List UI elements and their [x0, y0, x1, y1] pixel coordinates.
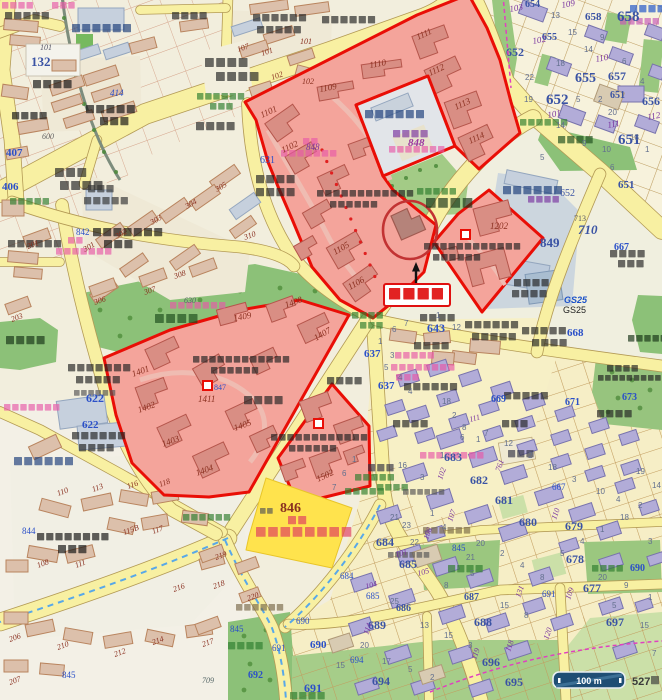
- svg-text:3: 3: [648, 537, 653, 546]
- svg-text:8: 8: [444, 581, 449, 590]
- svg-text:7: 7: [332, 483, 337, 492]
- svg-text:17: 17: [382, 657, 391, 666]
- svg-text:694: 694: [372, 674, 390, 688]
- svg-text:651: 651: [618, 179, 635, 191]
- svg-text:691: 691: [542, 589, 556, 599]
- svg-text:845: 845: [230, 624, 244, 634]
- svg-text:7: 7: [652, 649, 657, 658]
- svg-text:406: 406: [2, 181, 19, 193]
- svg-text:25: 25: [390, 597, 399, 606]
- svg-text:19: 19: [524, 95, 533, 104]
- svg-text:18: 18: [630, 133, 639, 142]
- svg-text:4: 4: [398, 373, 403, 382]
- svg-text:4: 4: [640, 77, 645, 86]
- svg-text:846: 846: [280, 501, 301, 516]
- svg-text:21: 21: [390, 513, 399, 522]
- svg-text:1: 1: [648, 593, 653, 602]
- svg-text:683: 683: [444, 450, 462, 464]
- svg-text:669: 669: [491, 394, 506, 405]
- svg-text:684: 684: [340, 571, 354, 581]
- svg-text:671: 671: [565, 397, 580, 408]
- svg-text:643: 643: [427, 321, 445, 335]
- svg-text:600: 600: [42, 132, 54, 141]
- svg-text:658: 658: [585, 11, 602, 23]
- svg-text:101: 101: [300, 37, 312, 46]
- svg-text:15: 15: [640, 621, 649, 630]
- svg-text:5: 5: [470, 569, 475, 578]
- svg-text:652: 652: [546, 92, 569, 108]
- svg-text:6: 6: [460, 433, 465, 442]
- svg-text:102: 102: [302, 77, 314, 86]
- svg-text:20: 20: [360, 641, 369, 650]
- svg-text:844: 844: [22, 526, 36, 536]
- svg-text:1: 1: [600, 525, 605, 534]
- svg-text:656: 656: [642, 94, 660, 108]
- svg-text:1: 1: [476, 435, 481, 444]
- svg-text:9: 9: [600, 33, 605, 42]
- svg-text:688: 688: [474, 615, 492, 629]
- svg-text:694: 694: [350, 655, 364, 665]
- svg-text:414: 414: [110, 88, 124, 98]
- svg-text:132: 132: [31, 54, 51, 69]
- svg-text:18: 18: [620, 513, 629, 522]
- svg-text:657: 657: [608, 69, 626, 83]
- svg-text:667: 667: [552, 482, 566, 492]
- svg-text:407: 407: [6, 147, 23, 159]
- svg-text:651: 651: [610, 90, 625, 101]
- svg-text:658: 658: [617, 9, 640, 25]
- svg-text:10: 10: [596, 487, 605, 496]
- svg-text:622: 622: [82, 419, 99, 431]
- svg-text:15: 15: [500, 601, 509, 610]
- svg-text:8: 8: [524, 611, 529, 620]
- svg-text:13: 13: [551, 11, 560, 20]
- svg-text:847: 847: [214, 383, 226, 392]
- svg-text:2: 2: [452, 411, 457, 420]
- svg-text:654: 654: [525, 0, 540, 10]
- svg-text:680: 680: [519, 515, 537, 529]
- svg-text:4: 4: [408, 387, 413, 396]
- svg-text:19: 19: [636, 467, 645, 476]
- svg-text:842: 842: [76, 227, 90, 237]
- svg-text:709: 709: [202, 676, 214, 685]
- svg-text:5: 5: [560, 549, 565, 558]
- svg-text:677: 677: [583, 581, 601, 595]
- svg-text:691: 691: [304, 681, 322, 695]
- svg-text:2: 2: [500, 549, 505, 558]
- svg-text:678: 678: [566, 552, 584, 566]
- svg-text:4: 4: [520, 561, 525, 570]
- svg-text:655: 655: [575, 71, 596, 86]
- svg-text:5: 5: [612, 601, 617, 610]
- svg-text:1: 1: [645, 145, 650, 154]
- svg-text:16: 16: [398, 461, 407, 470]
- svg-text:4: 4: [580, 537, 585, 546]
- svg-text:5: 5: [576, 95, 581, 104]
- svg-text:710: 710: [578, 222, 598, 237]
- svg-text:691: 691: [272, 643, 286, 653]
- svg-text:3: 3: [572, 475, 577, 484]
- svg-text:3: 3: [468, 641, 473, 650]
- svg-text:637: 637: [364, 348, 381, 360]
- svg-text:18: 18: [556, 59, 565, 68]
- svg-text:101: 101: [40, 43, 52, 52]
- svg-text:630: 630: [184, 296, 196, 305]
- svg-text:7: 7: [484, 429, 489, 438]
- svg-text:15: 15: [336, 661, 345, 670]
- svg-text:631: 631: [260, 155, 275, 166]
- svg-text:679: 679: [565, 519, 583, 533]
- svg-text:18: 18: [442, 397, 451, 406]
- svg-text:111: 111: [607, 118, 621, 130]
- svg-text:6: 6: [342, 469, 347, 478]
- svg-text:4: 4: [616, 495, 621, 504]
- svg-text:685: 685: [399, 557, 417, 571]
- svg-text:15: 15: [568, 28, 577, 37]
- svg-text:9: 9: [624, 581, 629, 590]
- svg-text:23: 23: [402, 521, 411, 530]
- svg-text:12: 12: [504, 439, 513, 448]
- svg-text:6: 6: [622, 57, 627, 66]
- svg-text:15: 15: [444, 631, 453, 640]
- svg-text:848: 848: [306, 142, 320, 152]
- svg-text:6: 6: [610, 163, 615, 172]
- svg-text:2: 2: [430, 673, 435, 682]
- svg-text:673: 673: [622, 392, 637, 403]
- svg-text:5: 5: [540, 153, 545, 162]
- svg-text:1411: 1411: [198, 394, 215, 404]
- svg-text:849: 849: [540, 235, 560, 250]
- svg-text:22: 22: [525, 73, 534, 82]
- svg-text:14: 14: [584, 45, 593, 54]
- svg-text:20: 20: [476, 539, 485, 548]
- svg-text:9: 9: [582, 139, 587, 148]
- svg-text:652: 652: [560, 188, 575, 199]
- svg-text:GS25: GS25: [564, 295, 588, 305]
- svg-text:21: 21: [466, 553, 475, 562]
- svg-text:14: 14: [556, 121, 565, 130]
- svg-text:685: 685: [366, 591, 380, 601]
- svg-text:100 m: 100 m: [576, 676, 602, 686]
- svg-text:695: 695: [505, 675, 523, 689]
- svg-text:22: 22: [410, 538, 419, 547]
- svg-text:697: 697: [606, 615, 624, 629]
- svg-text:668: 668: [567, 327, 584, 339]
- svg-text:692: 692: [248, 670, 263, 681]
- svg-text:8: 8: [462, 423, 467, 432]
- svg-text:2: 2: [528, 451, 533, 460]
- svg-text:848: 848: [408, 137, 425, 149]
- svg-text:18: 18: [548, 463, 557, 472]
- svg-text:10: 10: [602, 145, 611, 154]
- svg-text:1: 1: [440, 451, 445, 460]
- svg-text:681: 681: [495, 493, 513, 507]
- svg-text:690: 690: [310, 639, 327, 651]
- svg-text:2: 2: [598, 95, 603, 104]
- svg-text:1: 1: [352, 455, 357, 464]
- svg-text:8: 8: [540, 573, 545, 582]
- svg-text:5: 5: [408, 665, 413, 674]
- svg-text:652: 652: [506, 45, 524, 59]
- svg-text:682: 682: [470, 473, 488, 487]
- svg-text:12: 12: [452, 323, 461, 332]
- svg-text:1: 1: [436, 311, 441, 320]
- svg-text:20: 20: [608, 108, 617, 117]
- svg-text:845: 845: [62, 670, 76, 680]
- svg-text:1: 1: [378, 337, 383, 346]
- svg-text:690: 690: [296, 616, 310, 626]
- svg-text:3: 3: [390, 351, 395, 360]
- svg-text:7: 7: [404, 319, 409, 328]
- svg-text:GS25: GS25: [563, 305, 586, 315]
- svg-text:2: 2: [638, 501, 643, 510]
- svg-text:637: 637: [378, 380, 395, 392]
- svg-text:3: 3: [420, 473, 425, 482]
- svg-text:13: 13: [420, 621, 429, 630]
- svg-text:687: 687: [464, 592, 479, 603]
- svg-text:527: 527: [632, 676, 650, 688]
- svg-text:20: 20: [598, 573, 607, 582]
- svg-text:845: 845: [452, 543, 466, 553]
- svg-text:696: 696: [482, 655, 500, 669]
- svg-text:667: 667: [614, 242, 629, 253]
- svg-text:5: 5: [384, 363, 389, 372]
- svg-text:690: 690: [630, 563, 645, 574]
- svg-text:6: 6: [392, 325, 397, 334]
- svg-text:1202: 1202: [490, 221, 509, 231]
- svg-text:622: 622: [86, 391, 104, 405]
- svg-text:14: 14: [652, 481, 661, 490]
- svg-text:1: 1: [430, 509, 435, 518]
- svg-text:4: 4: [442, 523, 447, 532]
- svg-text:684: 684: [376, 535, 394, 549]
